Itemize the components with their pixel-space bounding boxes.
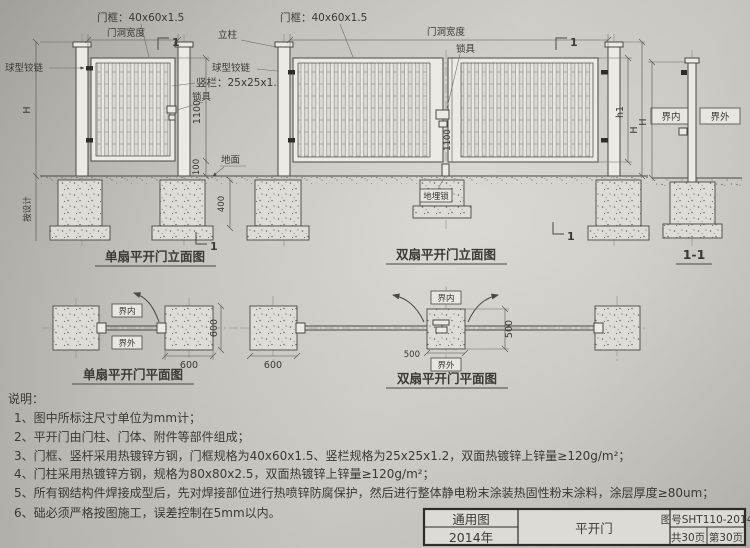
double-gate-plan: 界内 界外 500 500 600 双扇平开门平面图 (240, 286, 648, 388)
drawing-sheet-photo: H 按设计 门框：40x60x1.5 门洞宽度 1 1 球型铰链 单扇平开门立面… (0, 0, 750, 548)
hinge-icon (601, 70, 608, 75)
double-elevation-caption: 双扇平开门立面图 (395, 247, 496, 262)
notes-heading: 说明： (8, 391, 44, 406)
inside-label: 界内 (437, 293, 454, 304)
double-plan-caption: 双扇平开门平面图 (396, 371, 497, 386)
section-caption: 1-1 (683, 247, 706, 262)
leaf-height-dim: 1100 (192, 100, 203, 124)
ground-bolt (442, 164, 449, 176)
drawing-name-cell: 平开门 (575, 521, 613, 536)
gap-dim: 100 (192, 159, 202, 175)
hinge-icon (288, 138, 295, 143)
ground-lock-text: 地埋锁 (423, 191, 449, 202)
section-cut-mark-bottom: 1 (553, 222, 575, 243)
height-dim-label: H (638, 118, 649, 125)
embed-dim: 400 (217, 196, 227, 212)
swing-arrow-right (468, 295, 498, 322)
leaf-height-dim: 1100 (443, 129, 453, 151)
footing-depth-dim: 600 (209, 319, 220, 337)
hinge-icon (681, 70, 687, 75)
frame-spec-label: 门框：40x60x1.5 (280, 11, 367, 24)
note-line: 4、门柱采用热镀锌方钢，规格为80x80x2.5，双面热镀锌上锌量≥120g/m… (14, 466, 435, 481)
section-number: 1 (210, 240, 218, 253)
post-footing-dim: 600 (264, 360, 282, 371)
hinge-plate (594, 323, 603, 333)
inside-label: 界内 (661, 111, 680, 123)
hinge-label: 球型铰链 (212, 62, 251, 74)
center-footing-width-dim: 500 (404, 350, 420, 360)
hinge-icon (86, 138, 93, 143)
height-dim-label: H (22, 106, 33, 113)
note-line: 2、平开门由门柱、门体、附件等部件组成； (14, 429, 250, 444)
hinge-label: 球型铰链 (5, 62, 44, 74)
note-line: 1、图中所标注尺寸单位为mm计； (14, 410, 201, 425)
single-gate-plan: 界内 界外 600 600 单扇平开门平面图 (42, 293, 240, 384)
single-gate-elevation: H 按设计 门框：40x60x1.5 门洞宽度 1 1 球型铰链 单扇平开门立面… (5, 11, 218, 266)
hinge-plate (296, 323, 305, 333)
notes-block: 说明： 1、图中所标注尺寸单位为mm计； 2、平开门由门柱、门体、附件等部件组成… (8, 391, 714, 520)
latch-plate (157, 323, 166, 333)
swing-arrow-left (393, 295, 424, 322)
title-block: 通用图 2014年 平开门 图号SHT110-2014 共30页 第30页 (424, 509, 750, 545)
note-line: 6、础必须严格按图施工，误差控制在5mm以内。 (14, 505, 281, 520)
height-dim-label: H (629, 126, 640, 133)
drawing-type-cell: 通用图 (452, 512, 490, 527)
engineering-drawing: H 按设计 门框：40x60x1.5 门洞宽度 1 1 球型铰链 单扇平开门立面… (0, 0, 750, 548)
section-number: 1 (570, 36, 578, 49)
page-number-cell: 第30页 (709, 531, 743, 544)
total-pages-cell: 共30页 (671, 532, 705, 544)
note-line: 5、所有钢结构件焊接成型后，先对焊接部位进行热喷锌防腐保护，然后进行整体静电粉末… (14, 485, 714, 500)
outside-label: 界外 (118, 338, 136, 349)
note-line: 3、门框、竖杆采用热镀锌方钢，门框规格为40x60x1.5、竖栏规格为25x25… (14, 448, 630, 463)
ground-label: 地面 (221, 154, 240, 166)
center-footing-depth-dim: 500 (504, 320, 515, 338)
single-elevation-caption: 单扇平开门立面图 (105, 249, 205, 264)
outside-label: 界外 (437, 360, 455, 371)
hinge-icon (288, 70, 295, 75)
outside-label: 界外 (710, 111, 730, 123)
section-cut-mark-top: 1 (158, 36, 180, 50)
embed-depth-note: 按设计 (22, 196, 33, 222)
drawing-number-cell: 图号SHT110-2014 (661, 514, 750, 526)
hinge-plate (97, 323, 106, 333)
frame-spec-label: 门框：40x60x1.5 (97, 11, 184, 24)
post-label: 立柱 (218, 29, 238, 41)
lock-label: 锁具 (456, 43, 476, 55)
h1-dim-label: h1 (615, 106, 626, 118)
opening-width-label: 门洞宽度 (427, 26, 466, 38)
section-1-1-view: 界内 界外 H 1-1 (638, 50, 740, 264)
double-gate-elevation: 门框：40x60x1.5 门洞宽度 锁具 1100 地埋锁 h1 H 1 (247, 11, 649, 264)
bar-spec-label: 竖栏：25x25x1.2 (196, 76, 283, 89)
inside-label: 界内 (118, 306, 135, 317)
section-cut-mark-top: 1 (556, 36, 578, 50)
opening-width-label: 门洞宽度 (107, 27, 146, 39)
section-number: 1 (172, 36, 180, 49)
hinge-icon (86, 66, 93, 71)
single-plan-caption: 单扇平开门平面图 (83, 367, 183, 382)
hinge-icon (601, 138, 608, 143)
section-number: 1 (567, 230, 575, 243)
year-cell: 2014年 (449, 530, 493, 545)
